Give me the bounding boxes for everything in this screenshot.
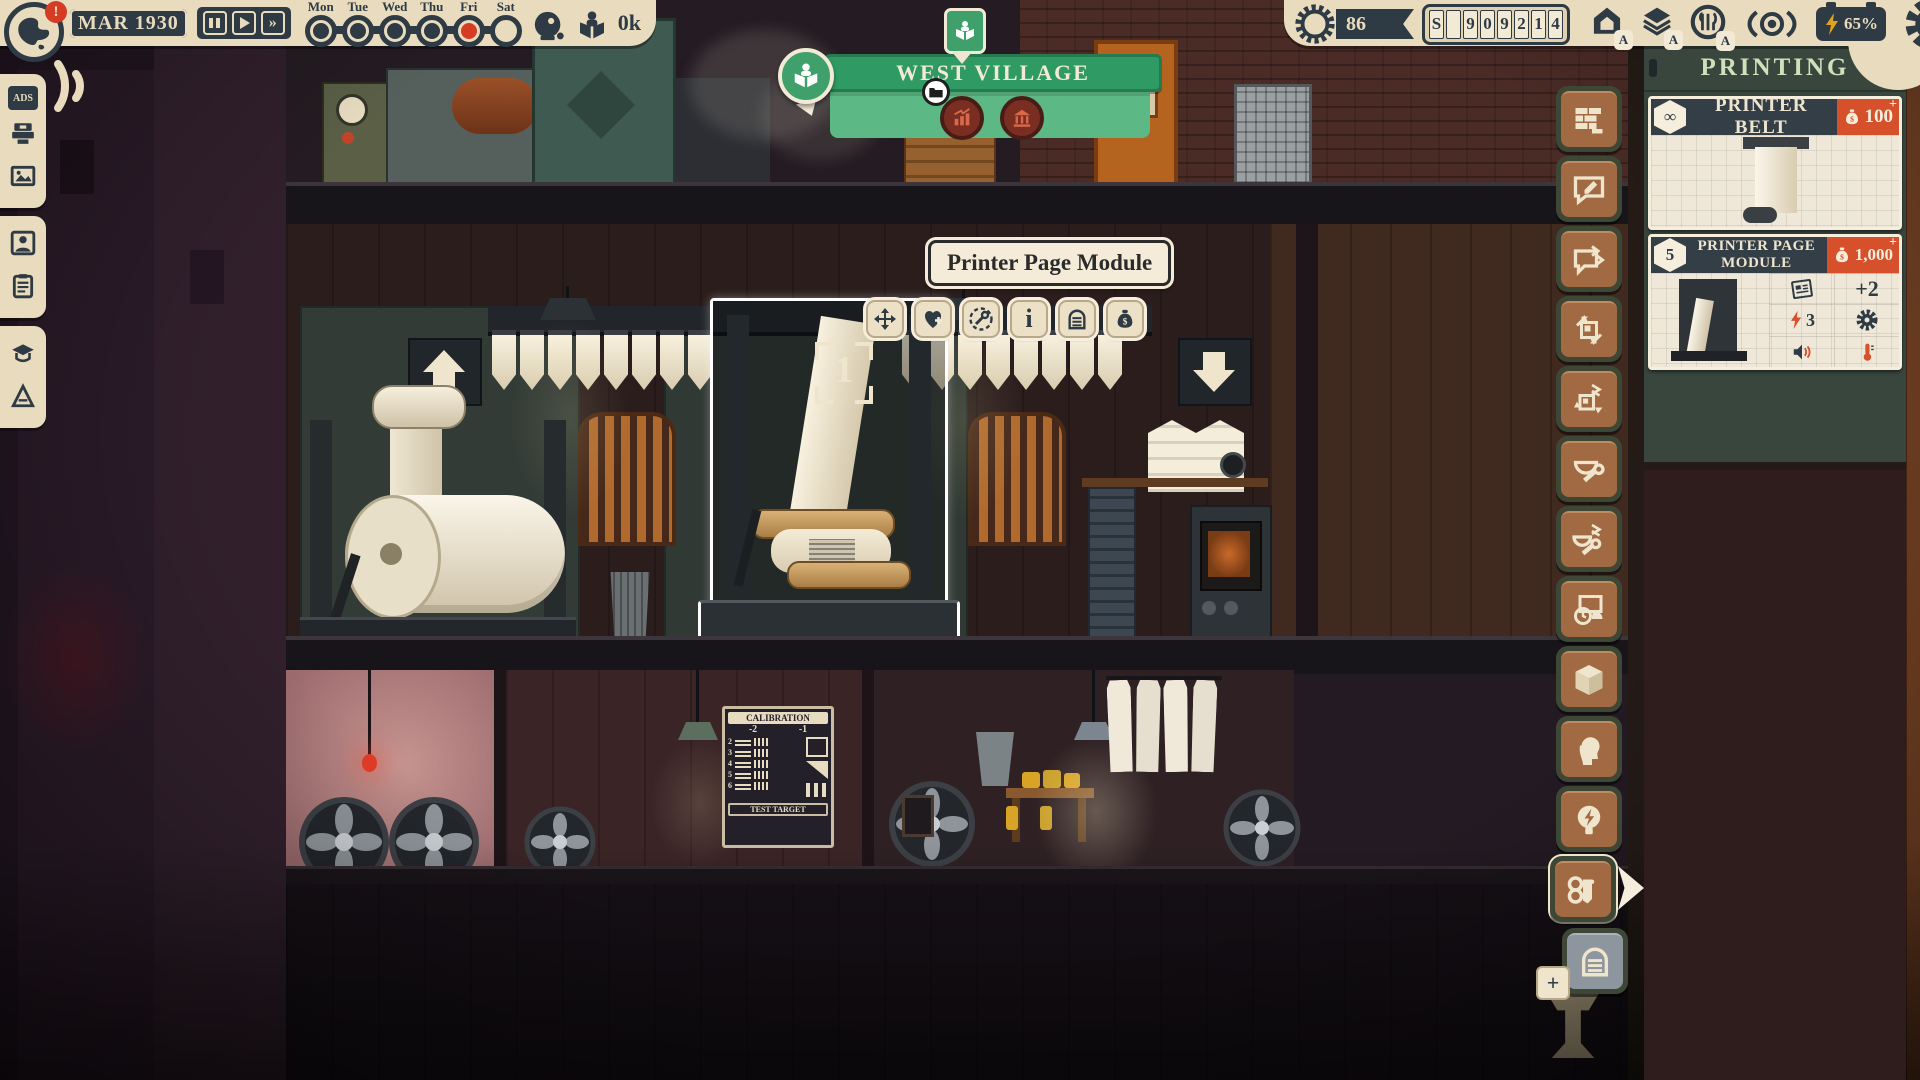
money-cell: 2 xyxy=(1514,10,1529,39)
decor-clock-icon xyxy=(1571,592,1607,628)
price-value: 1,000 xyxy=(1855,245,1893,265)
money-cell: S xyxy=(1429,10,1444,39)
delivery-badge-pointer xyxy=(952,52,972,74)
top-right-content: 86 S 9 0 9 2 1 4 A A A 65% xyxy=(1292,2,1920,46)
graduation-cap-icon xyxy=(9,340,37,366)
box-icon xyxy=(1571,662,1607,698)
sidebar-item-tasks[interactable] xyxy=(0,267,46,310)
district-food-button[interactable]: A xyxy=(1690,4,1726,45)
delivery-badge[interactable] xyxy=(944,8,986,54)
day-dot xyxy=(379,15,411,47)
reputation-value: 86 xyxy=(1346,13,1366,36)
belt-roller xyxy=(1743,207,1777,223)
module-base xyxy=(1671,351,1747,361)
day-sat: Sat xyxy=(490,0,522,47)
person-card-icon xyxy=(9,230,37,256)
money-cell: 0 xyxy=(1480,10,1495,39)
game-screen: 1 CALIBRATION -2 xyxy=(0,0,1920,1080)
money-cell: 4 xyxy=(1548,10,1563,39)
district-press-button[interactable]: A xyxy=(1640,5,1674,44)
module-stats: +2 3 xyxy=(1769,273,1899,367)
plus-icon: + xyxy=(1547,970,1560,996)
readers-icon xyxy=(576,9,608,41)
card-price: $ 100 + xyxy=(1837,99,1900,135)
tooltip-title: Printer Page Module xyxy=(947,250,1152,275)
district-housing-button[interactable]: A xyxy=(1590,5,1624,44)
lightning-icon xyxy=(1824,12,1840,36)
money-bag-icon: $ xyxy=(1843,107,1861,127)
build-card-printer-page-module[interactable]: 5 PRINTER PAGE MODULE $ 1,000 + xyxy=(1648,234,1902,370)
belt-paper xyxy=(1755,147,1797,213)
sidebar-segment xyxy=(0,216,46,318)
speaker-icon xyxy=(1790,341,1814,363)
clipboard-icon xyxy=(9,273,37,299)
top-hud-bar: ! MAR 1930 » Mon Tue Wed Thu Fri Sat 0k xyxy=(0,0,656,46)
card-illustration: +2 3 xyxy=(1651,273,1899,367)
price-plus: + xyxy=(1889,235,1897,251)
tool-shutters[interactable] xyxy=(1562,928,1628,994)
alert-badge[interactable]: ! xyxy=(45,1,67,23)
money-cell: 9 xyxy=(1497,10,1512,39)
sell-machine-button[interactable]: $ xyxy=(1106,300,1144,338)
repair-machine-button[interactable] xyxy=(914,300,952,338)
district-pin xyxy=(778,48,834,104)
money-cell: 1 xyxy=(1531,10,1546,39)
maintenance-button[interactable] xyxy=(962,300,1000,338)
money-bag-icon: $ xyxy=(1114,307,1136,331)
sidebar-item-blueprints[interactable] xyxy=(0,377,46,420)
bricks-icon xyxy=(1571,102,1607,138)
alert-mark: ! xyxy=(54,4,59,21)
tool-printing-active[interactable] xyxy=(1550,856,1616,922)
folder-badge[interactable] xyxy=(922,78,950,106)
power-percent: 65% xyxy=(1844,14,1878,34)
district-grade-badge: A xyxy=(1666,32,1681,48)
fast-forward-button[interactable]: » xyxy=(261,11,285,35)
stat-power: 3 xyxy=(1769,304,1834,335)
district-title-bar: WEST VILLAGE xyxy=(824,54,1162,92)
power-meter[interactable]: 65% xyxy=(1816,7,1886,41)
info-icon: i xyxy=(1025,304,1032,334)
add-room-badge[interactable]: + xyxy=(1536,966,1570,1000)
bowl-wrench-fast-icon xyxy=(1571,522,1607,558)
tool-layout-fast[interactable] xyxy=(1556,366,1622,432)
lightning-icon xyxy=(1789,310,1803,330)
tool-service-fast[interactable] xyxy=(1556,506,1622,572)
reader-icon xyxy=(791,61,821,91)
day-tue: Tue xyxy=(342,0,374,47)
industry-coin-economy[interactable] xyxy=(940,96,984,140)
date-display: MAR 1930 xyxy=(70,9,187,38)
gear-icon xyxy=(1855,308,1879,332)
article-fast-icon xyxy=(1571,242,1607,278)
panel-lower-divider xyxy=(1644,462,1906,470)
card-header: ∞ PRINTER BELT $ 100 + xyxy=(1651,99,1899,135)
visibility-eye-icon[interactable] xyxy=(1746,9,1798,39)
time-controls: » xyxy=(197,7,291,39)
wrench-cycle-icon xyxy=(968,306,994,332)
heart-plus-icon xyxy=(921,307,945,331)
district-grade-badge: A xyxy=(1718,33,1733,49)
date-text: MAR 1930 xyxy=(78,12,179,34)
day-thu: Thu xyxy=(416,0,448,47)
tool-build-rooms[interactable] xyxy=(1556,86,1622,152)
badge-value: ∞ xyxy=(1664,107,1676,127)
deadline-bell-icon[interactable] xyxy=(532,9,566,43)
module-illustration xyxy=(1651,273,1769,367)
store-machine-button[interactable] xyxy=(1058,300,1096,338)
world-map-button[interactable]: ! xyxy=(4,2,64,62)
battery-terminal xyxy=(1826,2,1836,8)
thermometer-icon xyxy=(1857,340,1877,364)
day-wed: Wed xyxy=(379,0,411,47)
card-price: $ 1,000 + xyxy=(1827,237,1899,273)
move-icon xyxy=(873,307,897,331)
bulb-lightning-icon xyxy=(1571,802,1607,838)
photo-icon xyxy=(9,163,37,189)
money-counter[interactable]: S 9 0 9 2 1 4 xyxy=(1422,4,1570,45)
ads-icon: ADS xyxy=(13,93,33,104)
sidebar-segment xyxy=(0,326,46,428)
sidebar-item-ads[interactable]: ADS xyxy=(0,82,46,114)
pause-button[interactable] xyxy=(203,11,227,35)
money-cell xyxy=(1446,10,1461,39)
readers-count: 0k xyxy=(618,10,641,36)
drafting-tools-icon xyxy=(9,383,37,409)
stat-pages-value: +2 xyxy=(1834,273,1899,304)
money-bag-icon: $ xyxy=(1833,245,1851,265)
battery-terminal xyxy=(1866,2,1876,8)
reader-icon xyxy=(953,19,977,43)
price-plus: + xyxy=(1889,97,1897,113)
tool-power[interactable] xyxy=(1556,786,1622,852)
civic-building-icon xyxy=(1011,107,1033,129)
newspaper-icon xyxy=(1787,275,1816,302)
machine-tooltip: Printer Page Module xyxy=(928,240,1171,286)
day-mon: Mon xyxy=(305,0,337,47)
play-button[interactable] xyxy=(232,11,256,35)
svg-text:$: $ xyxy=(1123,317,1128,327)
tool-strip: + xyxy=(0,0,1920,1080)
money-cell: 9 xyxy=(1463,10,1478,39)
svg-text:$: $ xyxy=(1850,115,1854,124)
build-card-printer-belt[interactable]: ∞ PRINTER BELT $ 100 + xyxy=(1648,96,1902,230)
signal-waves-icon xyxy=(48,54,112,123)
tool-decorations[interactable] xyxy=(1556,576,1622,642)
district-body xyxy=(830,92,1150,138)
printing-press-icon xyxy=(9,120,37,146)
left-sidebar: ADS xyxy=(0,74,46,428)
sidebar-item-staff[interactable] xyxy=(0,224,46,267)
newspaper-cycle-icon xyxy=(1571,312,1607,348)
stat-pages-icon xyxy=(1769,273,1834,304)
stat-noise-icon xyxy=(1769,336,1834,367)
day-dot xyxy=(416,15,448,47)
badge-value: 5 xyxy=(1666,245,1675,265)
sidebar-item-press[interactable] xyxy=(0,114,46,157)
card-header: 5 PRINTER PAGE MODULE $ 1,000 + xyxy=(1651,237,1899,273)
paper-rolls-icon xyxy=(1565,872,1601,908)
sidebar-item-research[interactable] xyxy=(0,334,46,377)
settings-gear-icon[interactable] xyxy=(1902,0,1920,53)
district-grade-badge: A xyxy=(1616,32,1631,48)
reputation-rosette-icon[interactable] xyxy=(1292,1,1338,47)
economy-chart-icon xyxy=(951,107,973,129)
tool-layout-newspaper[interactable] xyxy=(1556,296,1622,362)
ff-glyph: » xyxy=(269,14,277,32)
shutter-icon xyxy=(1578,945,1612,979)
card-illustration xyxy=(1651,135,1899,227)
machine-action-bar: i $ xyxy=(866,300,1144,338)
industry-coin-civic[interactable] xyxy=(1000,96,1044,140)
tool-article-queue[interactable] xyxy=(1556,226,1622,292)
tool-write-article[interactable] xyxy=(1556,156,1622,222)
folder-icon xyxy=(928,85,944,99)
shutter-icon xyxy=(1066,307,1088,331)
stat-heat-icon xyxy=(1834,336,1899,367)
stat-maintenance-icon xyxy=(1834,304,1899,335)
stat-power-value: 3 xyxy=(1806,310,1815,331)
day-dot xyxy=(342,15,374,47)
active-tool-pointer xyxy=(1618,866,1644,910)
card-title: PRINTER PAGE MODULE xyxy=(1686,238,1827,272)
panel-title: PRINTING xyxy=(1700,54,1849,82)
card-badge: ∞ xyxy=(1654,100,1686,134)
bowl-wrench-icon xyxy=(1571,452,1607,488)
district-banner: WEST VILLAGE xyxy=(818,54,1162,138)
day-dot xyxy=(453,15,485,47)
day-dot xyxy=(490,15,522,47)
info-button[interactable]: i xyxy=(1010,300,1048,338)
card-badge: 5 xyxy=(1654,238,1686,272)
move-machine-button[interactable] xyxy=(866,300,904,338)
reputation-flag: 86 xyxy=(1336,9,1414,39)
week-tracker: Mon Tue Wed Thu Fri Sat xyxy=(305,0,522,47)
head-icon xyxy=(1571,732,1607,768)
build-panel: PRINTING ∞ PRINTER BELT $ 100 + 5 xyxy=(1644,46,1906,1080)
card-title: PRINTER BELT xyxy=(1686,95,1837,139)
day-fri: Fri xyxy=(453,0,485,47)
sidebar-item-photo[interactable] xyxy=(0,157,46,200)
tool-storage[interactable] xyxy=(1556,646,1622,712)
newspaper-fast-icon xyxy=(1571,382,1607,418)
svg-text:$: $ xyxy=(1840,253,1844,262)
tool-service-machines[interactable] xyxy=(1556,436,1622,502)
article-pencil-icon xyxy=(1571,172,1607,208)
panel-handle xyxy=(1649,59,1657,77)
day-dot xyxy=(305,15,337,47)
tool-staff[interactable] xyxy=(1556,716,1622,782)
sidebar-segment: ADS xyxy=(0,74,46,208)
